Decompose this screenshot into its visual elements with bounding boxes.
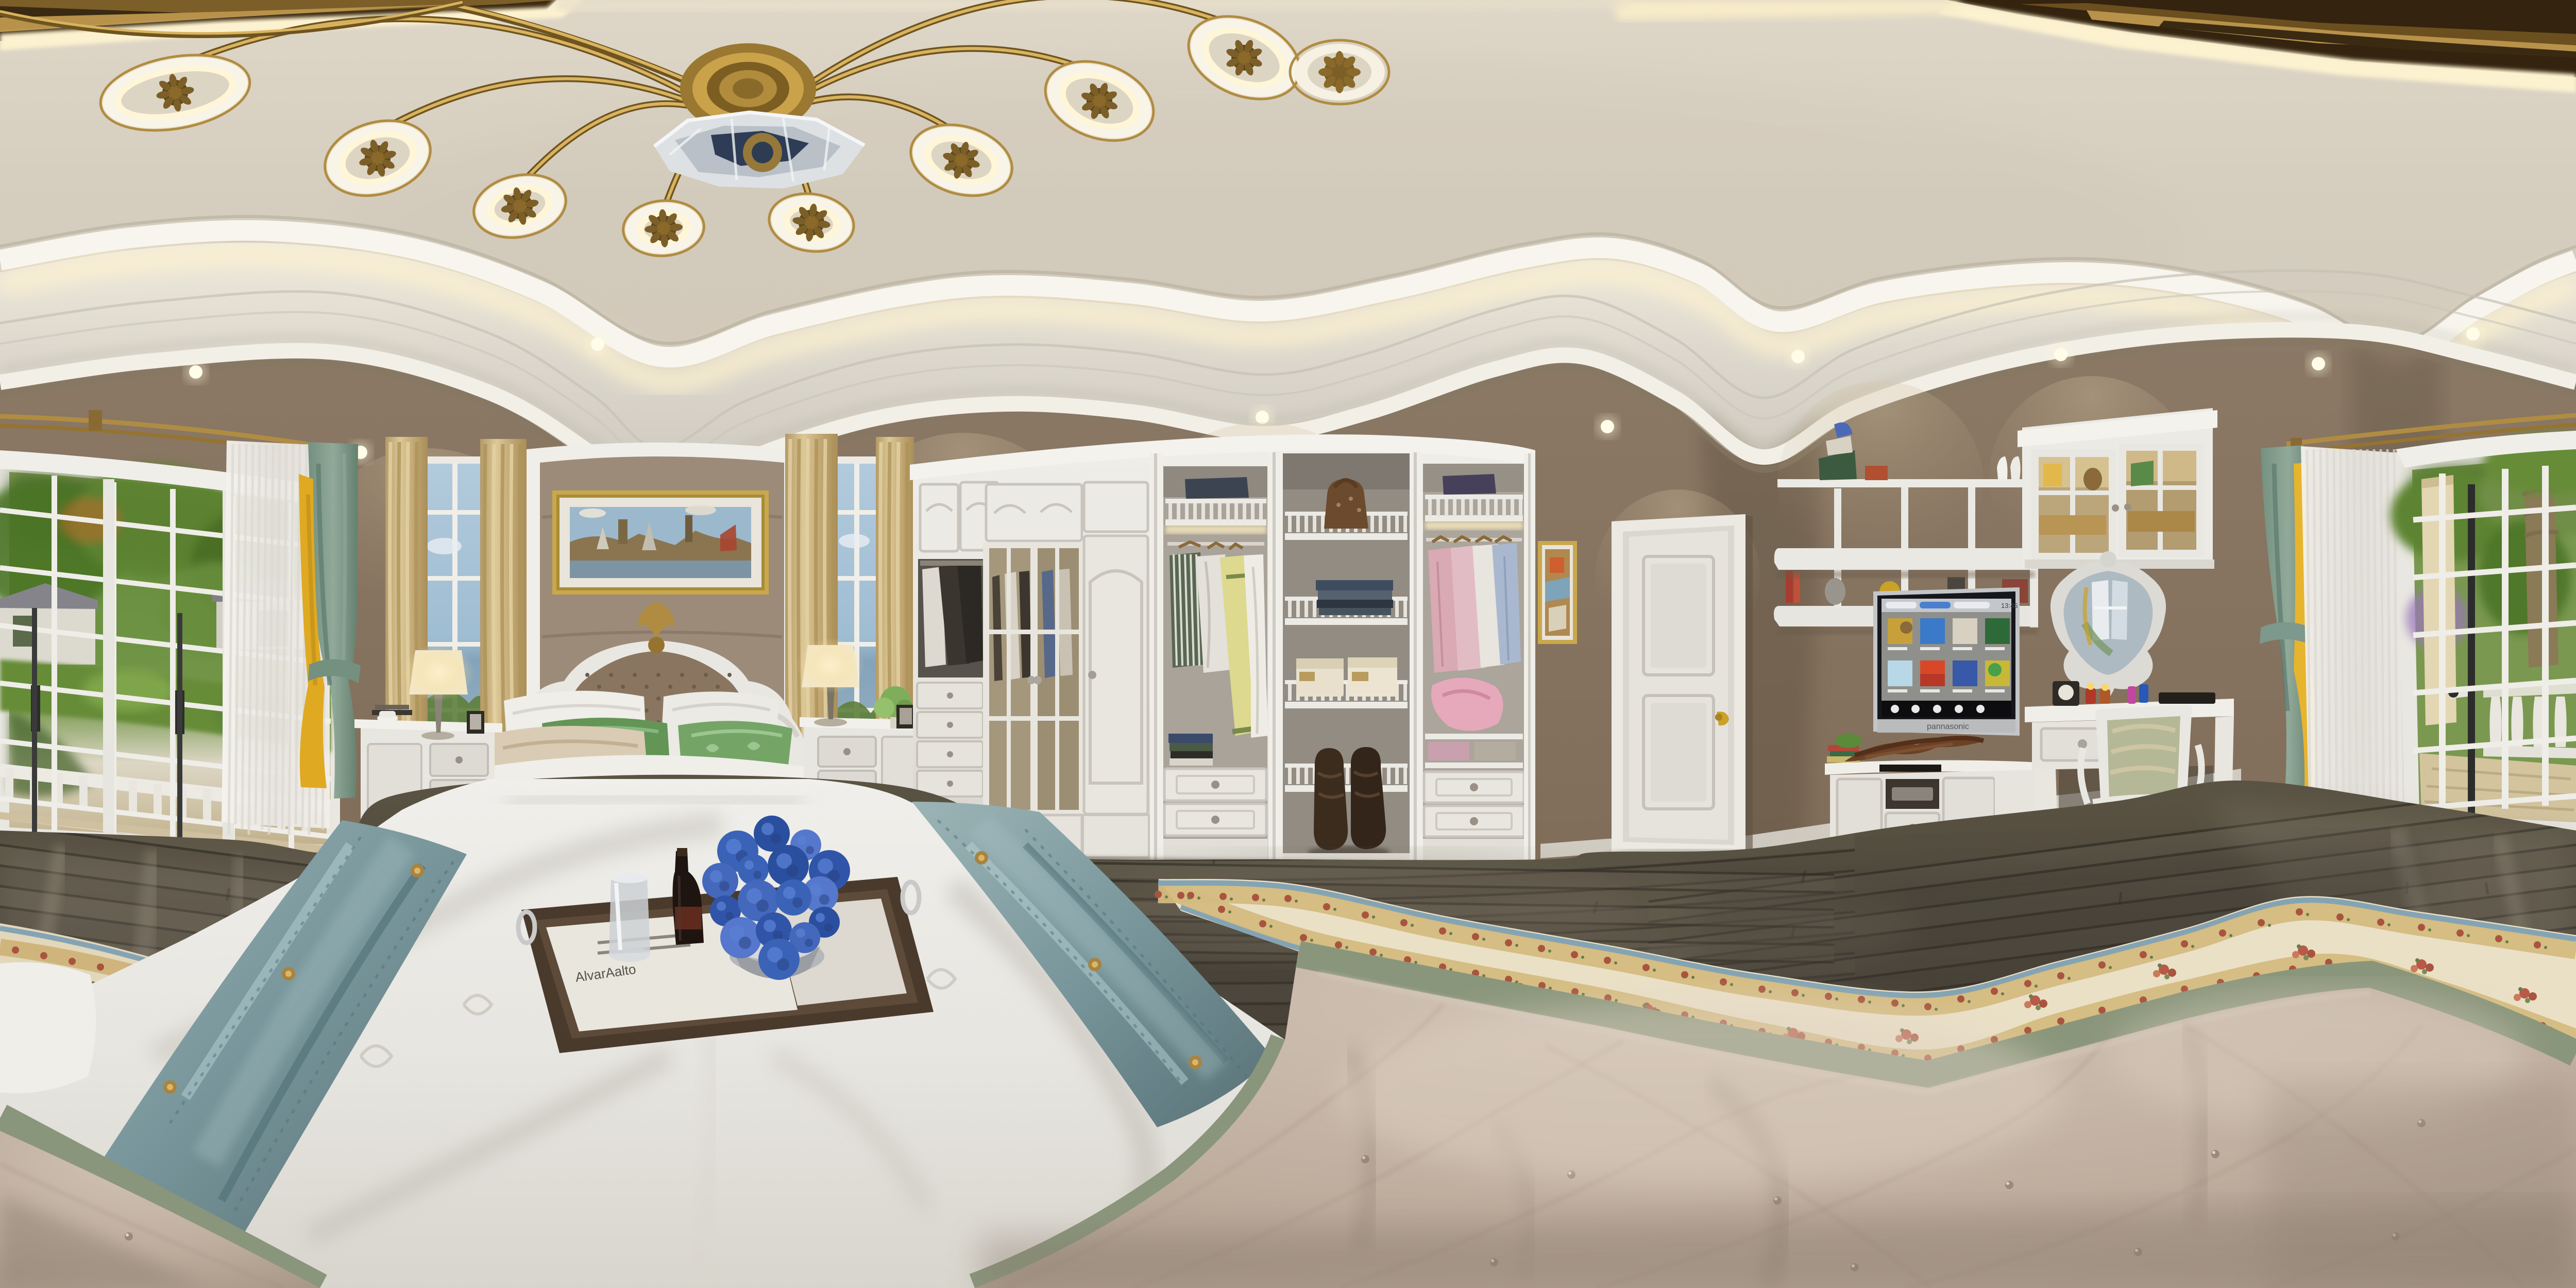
svg-text:pannasonic: pannasonic bbox=[1927, 722, 1969, 731]
svg-text:13:45: 13:45 bbox=[2001, 602, 2018, 609]
